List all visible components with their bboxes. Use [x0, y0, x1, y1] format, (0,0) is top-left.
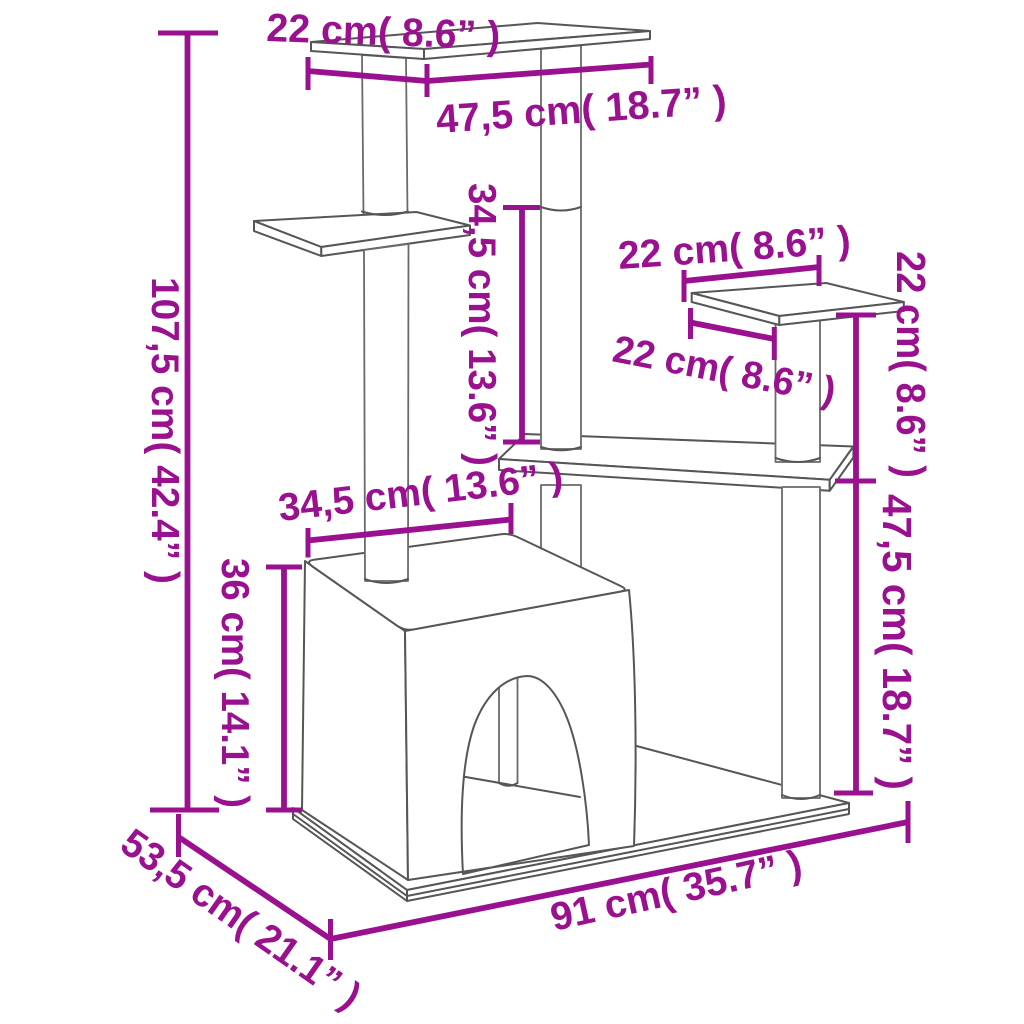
- svg-text:34,5 cm( 13.6” ): 34,5 cm( 13.6” ): [460, 183, 503, 466]
- svg-text:107,5 cm( 42.4” ): 107,5 cm( 42.4” ): [143, 277, 186, 584]
- svg-text:36 cm( 14.1” ): 36 cm( 14.1” ): [213, 558, 256, 808]
- svg-text:22 cm( 8.6” ): 22 cm( 8.6” ): [266, 6, 501, 58]
- svg-text:22 cm( 8.6” ): 22 cm( 8.6” ): [888, 251, 934, 478]
- svg-text:47,5 cm( 18.7” ): 47,5 cm( 18.7” ): [874, 494, 920, 790]
